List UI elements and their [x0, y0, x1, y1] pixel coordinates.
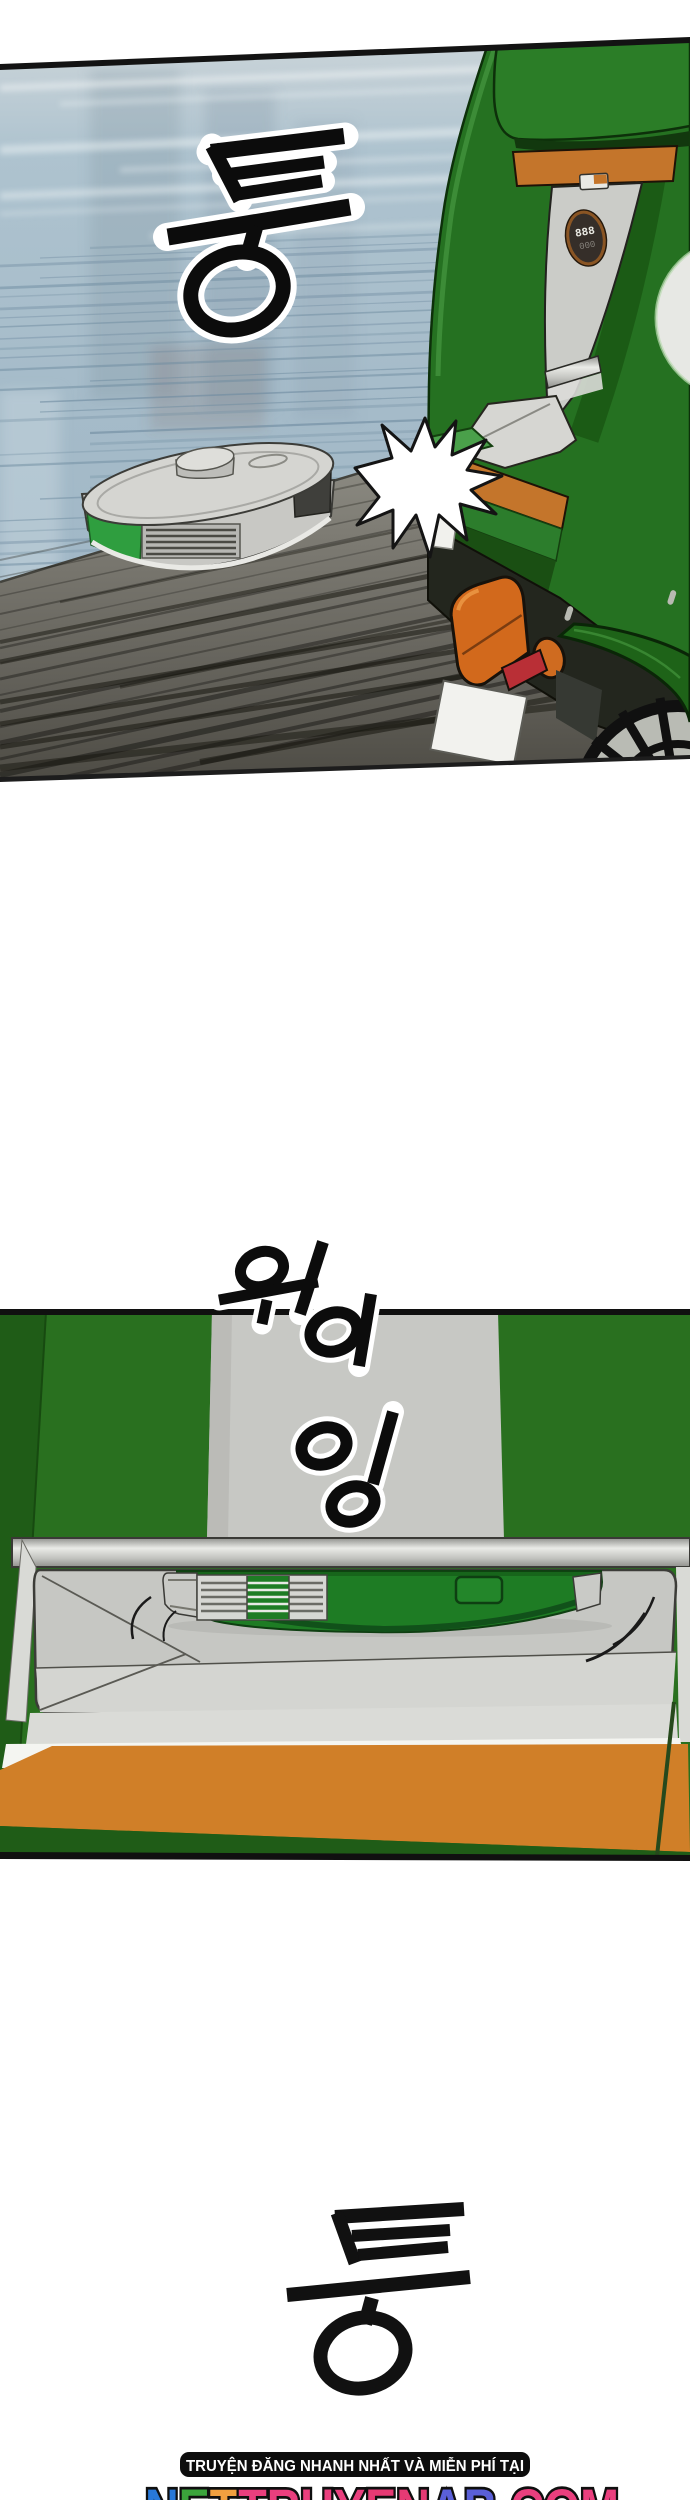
svg-text:TRUYỆN ĐĂNG NHANH NHẤT VÀ MIỄN: TRUYỆN ĐĂNG NHANH NHẤT VÀ MIỄN PHÍ TẠI — [186, 2457, 524, 2475]
svg-text:NETTRUYENAB.COM: NETTRUYENAB.COM — [145, 2477, 619, 2500]
